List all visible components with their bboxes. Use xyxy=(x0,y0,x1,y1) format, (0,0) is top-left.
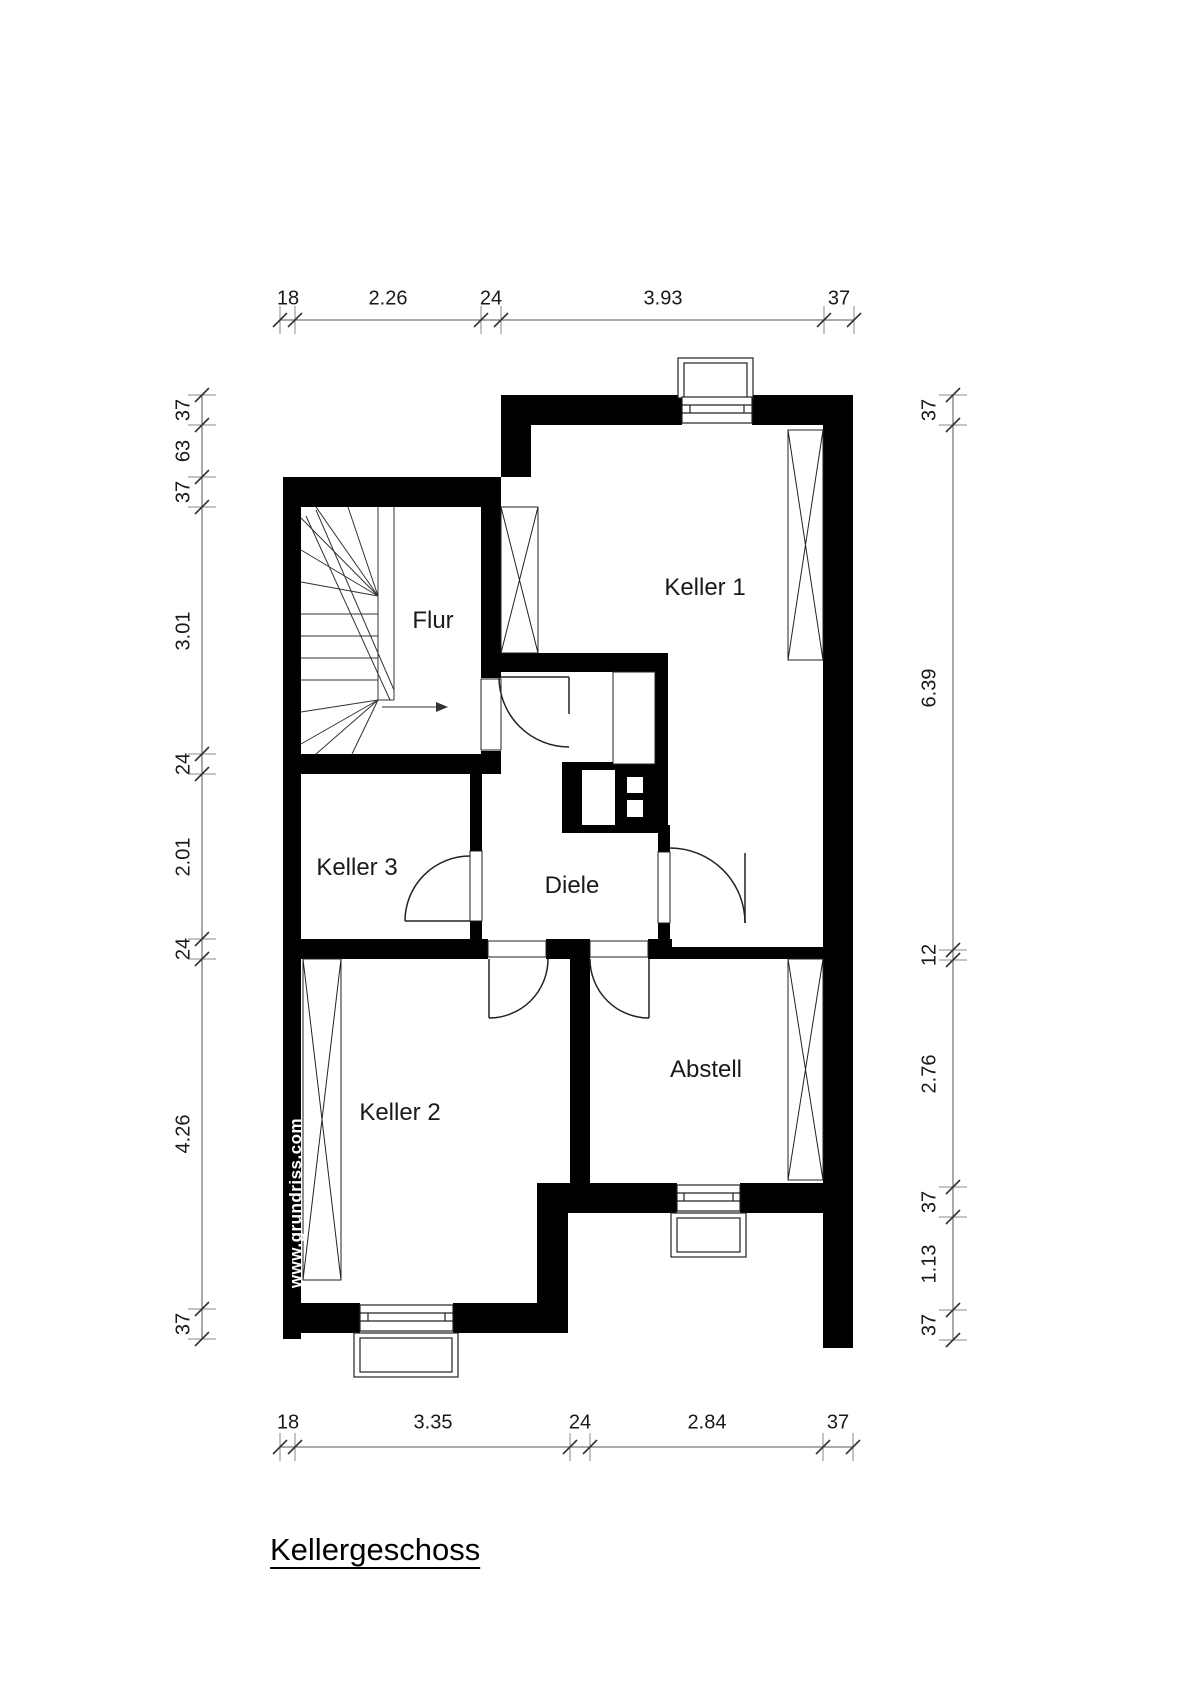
dim-top-1: 2.26 xyxy=(369,288,408,311)
wall-right-exterior xyxy=(823,395,853,1348)
wall-keller1-inner xyxy=(501,653,668,672)
room-label-diele: Diele xyxy=(545,872,600,900)
wall-keller2-bottom-a xyxy=(283,1303,360,1333)
dim-left-6: 24 xyxy=(173,938,196,960)
room-label-keller-3: Keller 3 xyxy=(316,854,397,882)
dim-right-1: 6.39 xyxy=(919,669,942,708)
dim-right-2: 12 xyxy=(919,944,942,966)
door-keller1 xyxy=(670,848,745,923)
wall-keller1-south-12 xyxy=(668,947,823,959)
dim-left-5: 2.01 xyxy=(173,838,196,877)
room-label-abstell: Abstell xyxy=(670,1056,742,1084)
dim-right-4: 37 xyxy=(919,1191,942,1213)
door-flur-diele xyxy=(499,677,569,747)
dim-top-4: 37 xyxy=(828,288,850,311)
dim-right-3: 2.76 xyxy=(919,1055,942,1094)
dim-left-8: 37 xyxy=(173,1313,196,1335)
light-well-inner xyxy=(684,363,747,398)
dim-top-0: 18 xyxy=(277,288,299,311)
flue-large xyxy=(582,770,615,825)
page-title: Kellergeschoss xyxy=(270,1532,480,1568)
wall-duct-right xyxy=(655,672,668,764)
wall-keller3-right-b xyxy=(470,921,482,939)
wall-keller3-top xyxy=(283,754,481,774)
flue-small-1 xyxy=(627,777,643,793)
window-keller1-top xyxy=(678,358,753,423)
stair-direction-arrow xyxy=(436,702,448,712)
wall-partition-k2-abstell xyxy=(570,959,590,1183)
door-frame-keller3 xyxy=(470,851,482,921)
room-label-flur: Flur xyxy=(412,607,453,635)
door-keller3 xyxy=(405,856,470,921)
niche-abstell-right xyxy=(788,959,823,1180)
wall-top-left-section xyxy=(283,477,501,507)
door-abstell xyxy=(590,959,649,1018)
duct-shaft xyxy=(613,672,655,764)
niche-keller1-right xyxy=(788,430,823,660)
wall-keller2-bottom-b xyxy=(453,1303,568,1333)
wall-diele-bottom-a xyxy=(283,939,488,959)
dim-left-0: 37 xyxy=(173,399,196,421)
dim-bottom-2: 24 xyxy=(569,1412,591,1435)
window-keller2-bottom xyxy=(354,1305,458,1377)
door-frame-abstell xyxy=(590,941,648,957)
dim-left-7: 4.26 xyxy=(173,1115,196,1154)
wall-top-right-a xyxy=(501,395,682,425)
dim-left-1: 63 xyxy=(173,440,196,462)
wall-diele-bottom-c xyxy=(648,939,672,959)
window-frame xyxy=(677,1185,740,1211)
wall-flur-right-upper xyxy=(481,507,501,678)
door-frame-keller2 xyxy=(488,941,546,957)
wall-step-junction xyxy=(501,425,531,477)
wall-diele-bottom-b xyxy=(546,939,590,959)
dim-bottom-4: 37 xyxy=(827,1412,849,1435)
room-label-keller-2: Keller 2 xyxy=(359,1099,440,1127)
door-keller2 xyxy=(489,959,548,1018)
dim-bottom-3: 2.84 xyxy=(688,1412,727,1435)
door-frame-keller1 xyxy=(658,852,670,923)
window-frame xyxy=(682,397,752,423)
light-well-inner xyxy=(360,1338,452,1372)
watermark: www.grundriss.com xyxy=(286,1118,306,1288)
dim-bottom-0: 18 xyxy=(277,1412,299,1435)
room-label-keller-1: Keller 1 xyxy=(664,574,745,602)
niche-keller2-left xyxy=(303,959,341,1280)
window-abstell-bottom xyxy=(671,1185,746,1257)
door-frame-flur xyxy=(481,679,501,750)
dim-left-3: 3.01 xyxy=(173,612,196,651)
dim-top-2: 24 xyxy=(480,288,502,311)
dim-left-2: 37 xyxy=(173,481,196,503)
niche-chimney-top xyxy=(501,507,538,653)
dim-right-5: 1.13 xyxy=(919,1245,942,1284)
flue-small-2 xyxy=(627,800,643,817)
window-frame xyxy=(360,1305,453,1331)
wall-diele-right-a xyxy=(658,825,670,852)
wall-keller3-right-a xyxy=(470,774,482,851)
wall-flur-right-lower xyxy=(481,751,501,774)
light-well-inner xyxy=(677,1218,740,1252)
floor-plan-page: Flur Keller 1 Keller 3 Diele Keller 2 Ab… xyxy=(0,0,1200,1703)
dim-bottom-1: 3.35 xyxy=(414,1412,453,1435)
dim-right-0: 37 xyxy=(919,399,942,421)
dim-right-6: 37 xyxy=(919,1314,942,1336)
dim-left-4: 24 xyxy=(173,753,196,775)
dim-top-3: 3.93 xyxy=(644,288,683,311)
